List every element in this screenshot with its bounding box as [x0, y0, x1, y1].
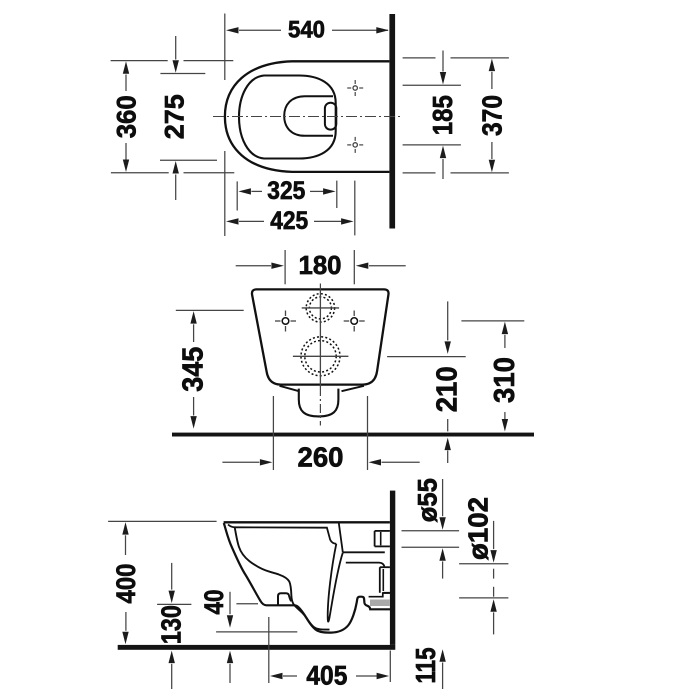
svg-text:405: 405 [306, 661, 347, 691]
svg-text:185: 185 [427, 95, 458, 135]
svg-text:ø102: ø102 [462, 497, 493, 560]
svg-text:425: 425 [270, 207, 308, 235]
svg-text:310: 310 [489, 357, 521, 403]
svg-text:130: 130 [156, 605, 187, 644]
svg-text:ø55: ø55 [413, 478, 443, 522]
svg-text:260: 260 [298, 441, 344, 472]
svg-text:360: 360 [111, 95, 141, 138]
svg-text:325: 325 [267, 177, 305, 205]
svg-text:115: 115 [410, 648, 441, 684]
svg-text:210: 210 [432, 366, 464, 412]
svg-text:180: 180 [299, 250, 342, 280]
svg-text:400: 400 [111, 564, 141, 604]
svg-text:370: 370 [476, 95, 507, 136]
svg-text:275: 275 [160, 94, 190, 139]
svg-text:345: 345 [178, 347, 210, 392]
svg-text:540: 540 [288, 17, 325, 44]
svg-text:40: 40 [199, 590, 229, 615]
